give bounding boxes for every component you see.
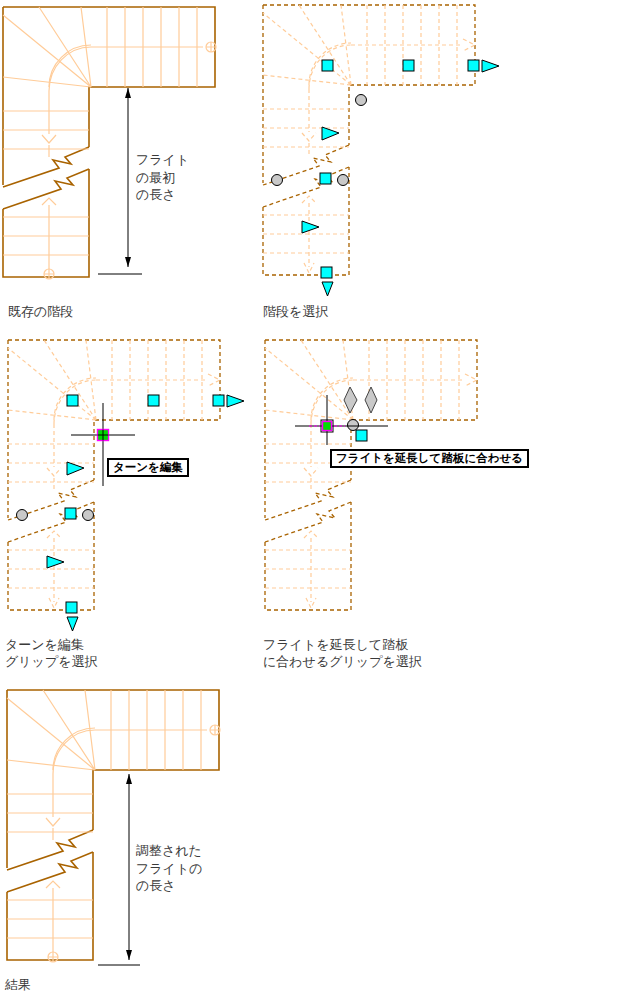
square-grip-icon[interactable] [66, 602, 77, 613]
flow-arrow-down-icon [302, 133, 316, 141]
stair-plan-selected[interactable] [263, 5, 475, 275]
dim-arrow-up [126, 774, 132, 784]
figure-stair-selected [260, 0, 520, 300]
tread-lines [8, 444, 94, 482]
square-grip-icon[interactable] [322, 60, 333, 71]
stair-outline [263, 5, 475, 145]
grips [17, 395, 245, 631]
flow-arrow-end-icon [208, 374, 220, 386]
square-grip-icon[interactable] [403, 60, 414, 71]
caption-select-stair: 階段を選択 [263, 303, 328, 320]
stair-outline [265, 502, 351, 610]
break-line [3, 169, 89, 209]
circle-grip-icon[interactable] [348, 420, 359, 431]
flow-arrow-end-icon [304, 263, 314, 273]
square-grip-icon[interactable] [321, 267, 332, 278]
stair-outline [7, 852, 93, 960]
break-line [265, 480, 351, 520]
flow-arrow-down-icon [47, 468, 61, 476]
arrow-grip-icon[interactable] [322, 127, 339, 140]
square-grip-icon[interactable] [356, 430, 367, 441]
break-line [263, 167, 349, 207]
break-line [3, 147, 89, 187]
break-line [7, 852, 93, 892]
caption-existing-stair: 既存の階段 [8, 303, 73, 320]
diamond-grip-icon[interactable] [344, 387, 357, 413]
circle-grip-icon[interactable] [272, 175, 283, 186]
turn-arc [53, 728, 95, 770]
stair-plan[interactable] [7, 690, 220, 962]
break-line [7, 830, 93, 870]
dimension-adjusted-flight-length [98, 774, 140, 965]
arrow-grip-icon[interactable] [227, 395, 244, 407]
tread-lines [7, 900, 93, 938]
flow-arrow-down-icon [42, 135, 56, 143]
dim-arrow-down [126, 950, 132, 960]
figure-extend-flight [262, 338, 522, 638]
stair-outline [3, 169, 89, 277]
circle-grip-icon[interactable] [338, 175, 349, 186]
caption-result: 結果 [5, 976, 31, 993]
arrow-grip-icon[interactable] [67, 462, 84, 475]
tread-lines [263, 109, 349, 147]
tread-lines [263, 215, 349, 253]
break-line [265, 502, 351, 542]
circle-grip-icon[interactable] [17, 510, 28, 521]
square-grip-icon[interactable] [148, 395, 159, 406]
stair-plan[interactable] [3, 7, 216, 279]
square-grip-icon[interactable] [468, 60, 479, 71]
help-illustration-canvas: フライト の最初 の長さ 既存の階段 [0, 0, 640, 997]
flow-arrow-end-icon [465, 374, 477, 386]
figure-edit-turn [5, 338, 265, 638]
stair-outline [7, 690, 219, 830]
grip-tooltip: ターンを編集 [107, 458, 189, 477]
arrow-grip-icon[interactable] [482, 60, 499, 72]
flow-arrow-up-icon [46, 881, 60, 888]
dim-label-initial-length: フライト の最初 の長さ [136, 151, 189, 204]
grips [272, 60, 500, 296]
square-grip-icon[interactable] [213, 395, 224, 406]
hot-grip-icon[interactable] [323, 422, 332, 431]
dim-arrow-up [125, 88, 131, 98]
grip-tooltip: フライトを延長して踏板に合わせる [330, 449, 529, 468]
tread-lines [3, 111, 89, 149]
diamond-grip-icon[interactable] [365, 387, 377, 413]
flow-arrow-down-icon [46, 818, 60, 826]
flow-arrow-up-icon [47, 531, 61, 538]
flow-arrow-up-icon [302, 196, 316, 203]
turn-arc [49, 45, 91, 87]
caption-edit-turn: ターンを編集 グリップを選択 [5, 636, 98, 670]
arrow-grip-icon[interactable] [67, 617, 78, 631]
figure-existing-stair [0, 0, 250, 300]
stair-plan-selected[interactable] [265, 340, 477, 610]
tread-lines [8, 550, 94, 588]
figure-result [4, 688, 254, 988]
flow-arrow-end-icon [306, 598, 316, 608]
tread-lines [3, 217, 89, 255]
flow-arrow-down-icon [304, 468, 318, 476]
stair-outline [3, 7, 215, 147]
arrow-grip-icon[interactable] [302, 221, 319, 233]
flow-arrow-end-icon [463, 39, 475, 51]
circle-grip-icon[interactable] [356, 95, 367, 106]
caption-extend-flight: フライトを延長して踏板 に合わせるグリップを選択 [263, 636, 422, 670]
dim-label-adjusted-length: 調整された フライトの の長さ [136, 842, 203, 895]
circle-grip-icon[interactable] [83, 510, 94, 521]
break-line [8, 502, 94, 542]
tread-lines [265, 550, 351, 588]
dim-arrow-down [125, 257, 131, 267]
square-grip-icon[interactable] [65, 508, 76, 519]
flow-arrow-up-icon [42, 198, 56, 205]
flow-arrow-up-icon [304, 531, 318, 538]
tread-lines [7, 794, 93, 832]
flow-arrow-end-icon [49, 598, 59, 608]
arrow-grip-icon[interactable] [47, 556, 64, 568]
square-grip-icon[interactable] [320, 173, 331, 184]
flow-centerline [311, 380, 465, 424]
square-grip-icon[interactable] [67, 395, 78, 406]
arrow-grip-icon[interactable] [322, 282, 333, 296]
